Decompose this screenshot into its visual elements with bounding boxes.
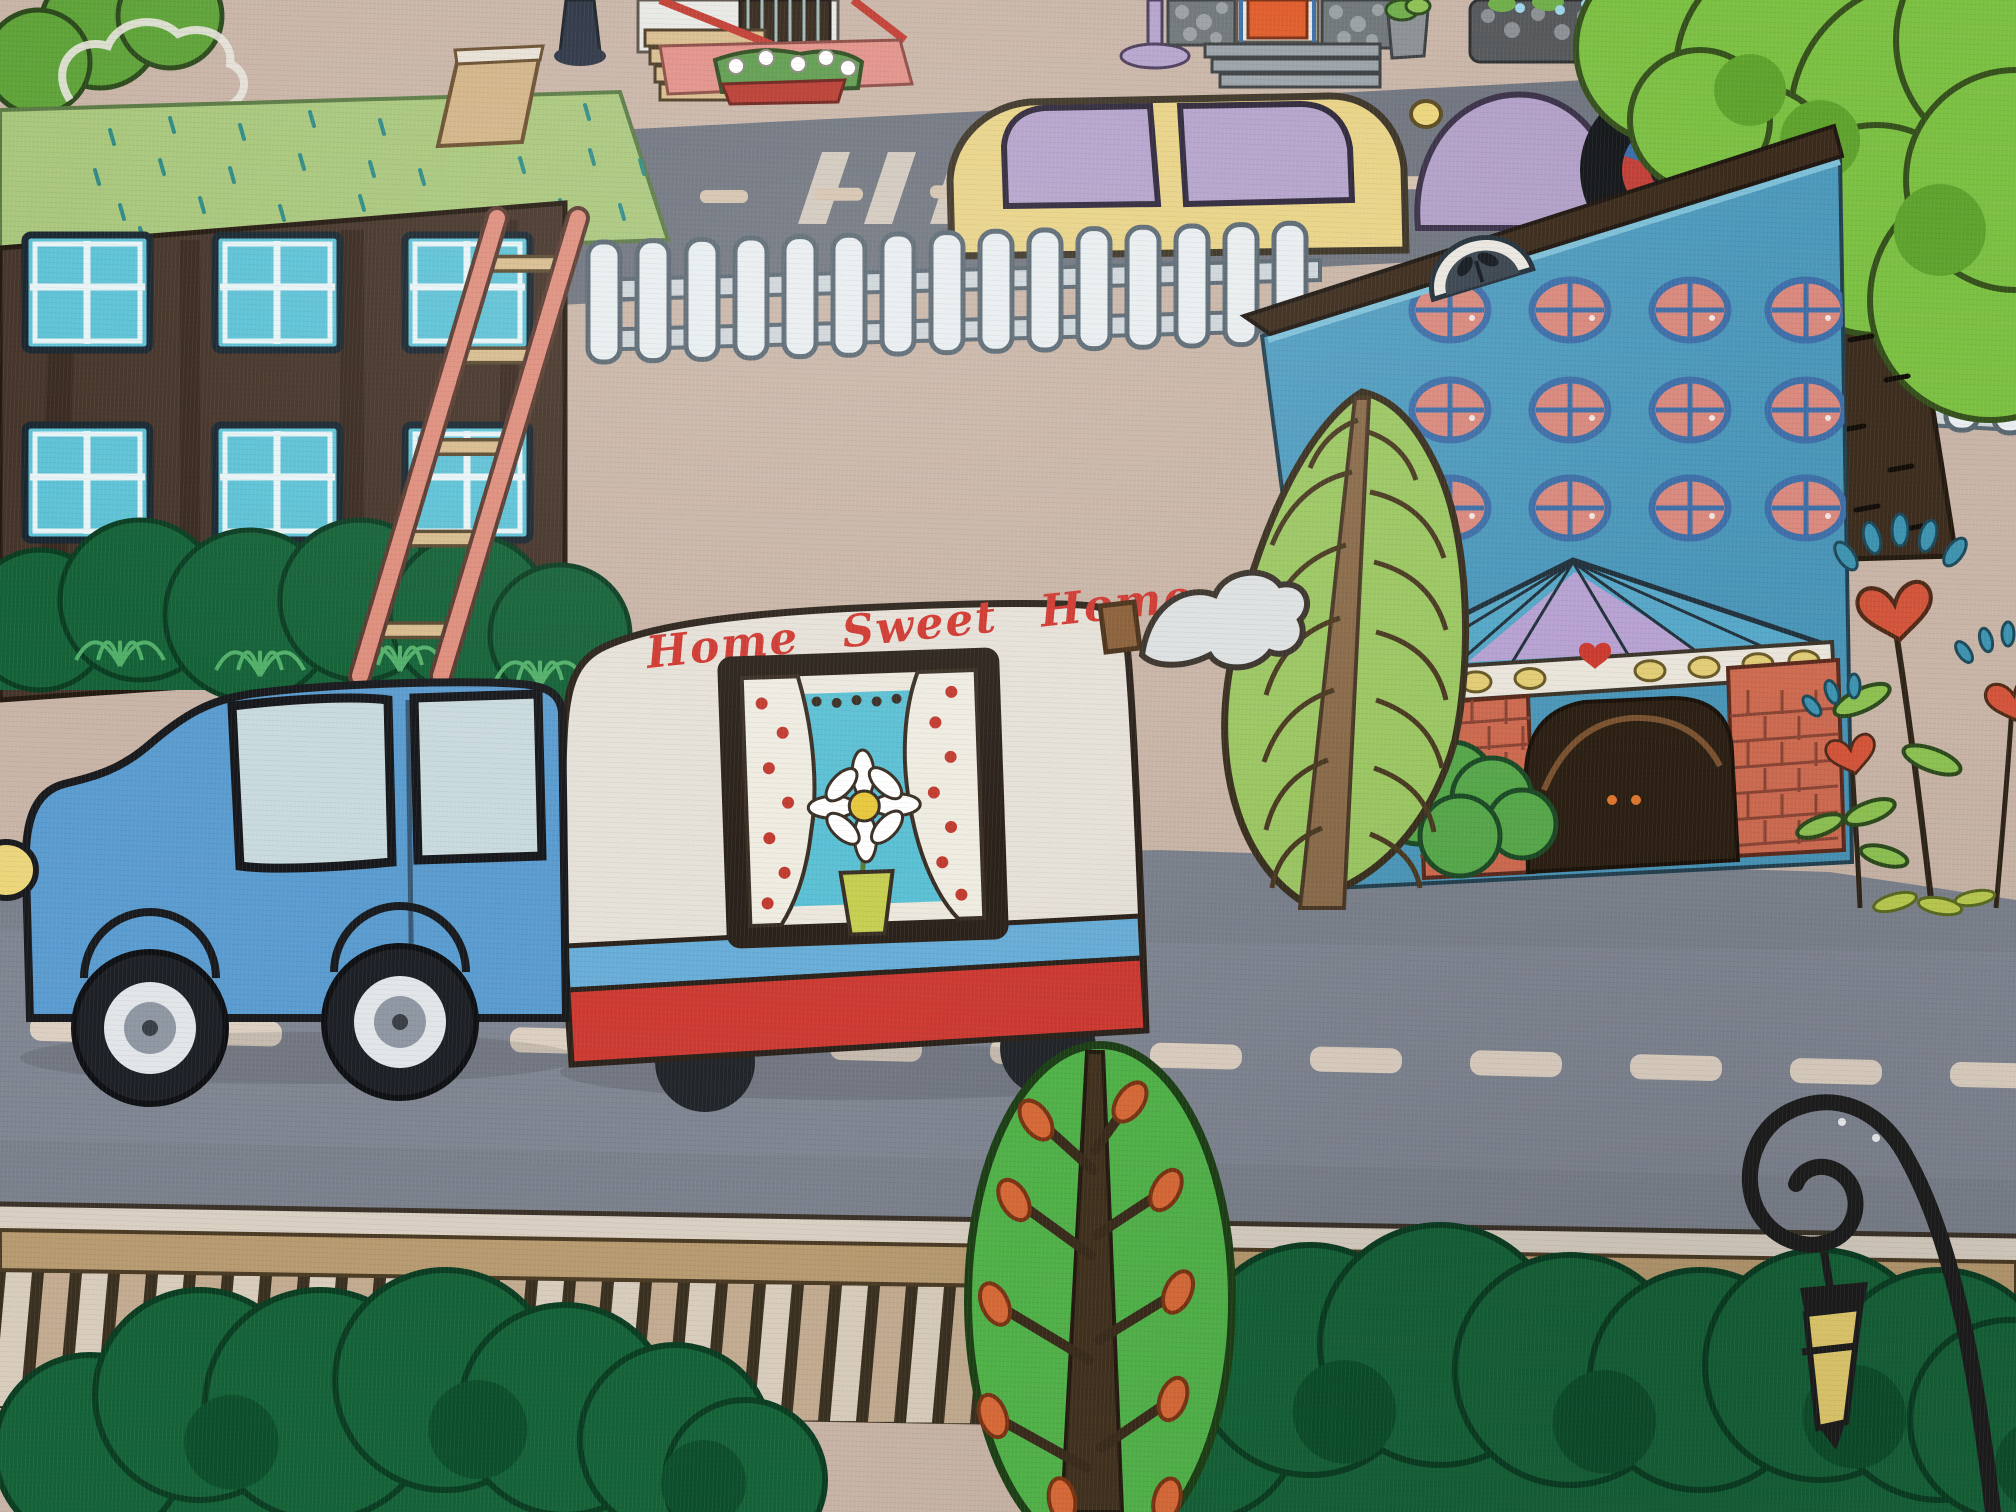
truck-wheel-front bbox=[74, 952, 226, 1104]
truck-window-rear bbox=[414, 694, 542, 860]
bottom-bushes-right bbox=[1100, 1225, 2016, 1512]
car-window-right bbox=[1180, 104, 1352, 204]
truck-wheel-rear bbox=[324, 946, 476, 1098]
street-bollard bbox=[560, 0, 600, 52]
orange-door bbox=[1248, 0, 1307, 38]
vase bbox=[841, 871, 895, 935]
door-planter bbox=[1386, 0, 1430, 58]
arch-doorway bbox=[1526, 698, 1738, 872]
rug-scene: Home Sweet Home bbox=[0, 0, 2016, 1512]
stone-steps bbox=[1205, 44, 1380, 87]
chimney bbox=[1100, 602, 1140, 652]
camper-window bbox=[717, 647, 1009, 949]
car-window-left bbox=[1004, 106, 1158, 206]
truck-headlight bbox=[0, 842, 36, 898]
bottom-tree bbox=[968, 1045, 1232, 1512]
headlight bbox=[1411, 101, 1441, 127]
red-planter bbox=[722, 80, 845, 104]
play-rug-photo: Home Sweet Home bbox=[0, 0, 2016, 1512]
truck-window-front bbox=[232, 698, 392, 868]
